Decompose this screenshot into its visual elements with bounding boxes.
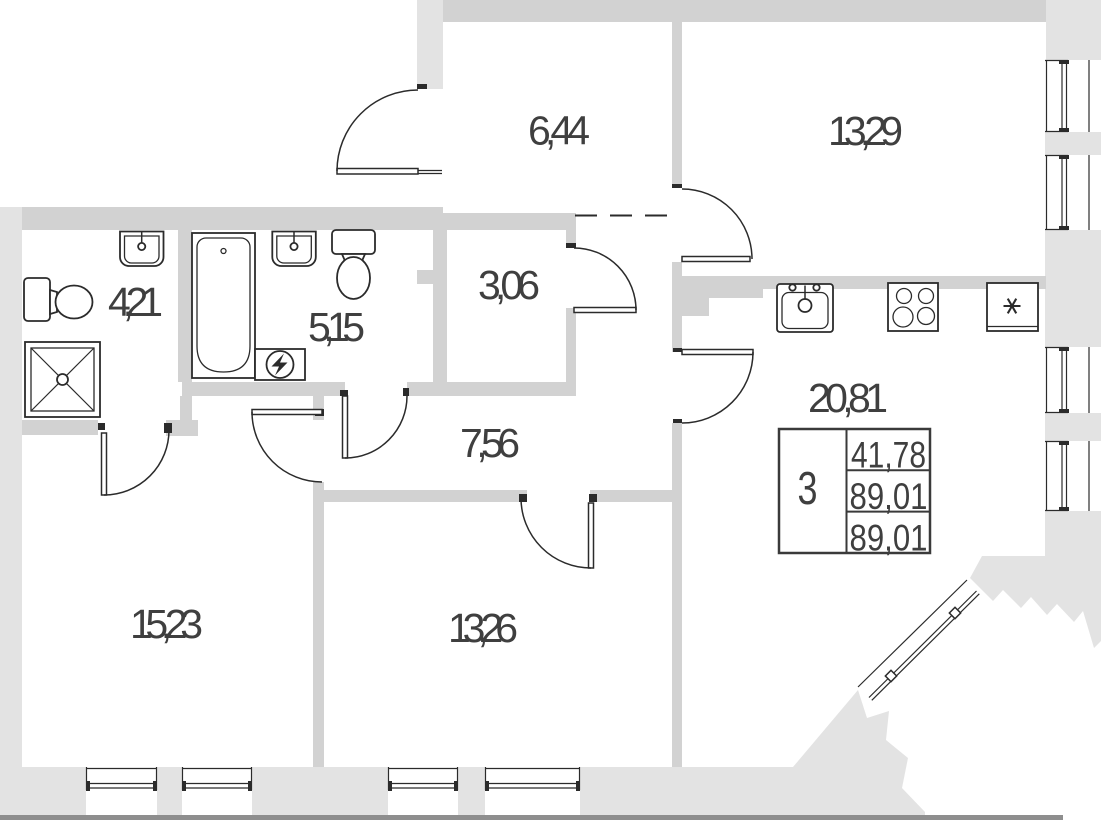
windows	[86, 60, 1089, 791]
door-icon	[682, 350, 753, 424]
table-value-2: 89,01	[850, 476, 928, 517]
room-label-bathroom-small: 4,21	[108, 279, 163, 325]
floor-plan: 6,44 13,29 4,21 5,15 3,06 7,56 20,81 15,…	[0, 0, 1101, 824]
window-icon	[1045, 347, 1089, 413]
room-label-bathroom-large: 5,15	[308, 304, 365, 350]
window-icon	[1045, 441, 1089, 511]
room-label-bedroom-top: 13,29	[828, 108, 903, 154]
door-icon	[574, 248, 636, 313]
kitchen-sink-icon	[777, 284, 833, 332]
room-label-wardrobe: 3,06	[478, 262, 540, 308]
outer-edge-line	[0, 815, 1063, 820]
table-value-1: 41,78	[851, 435, 926, 476]
window-icon	[86, 767, 157, 791]
room-label-bedroom-center: 13,26	[448, 605, 518, 651]
room-labels: 6,44 13,29 4,21 5,15 3,06 7,56 20,81 15,…	[108, 108, 903, 652]
door-icon	[521, 498, 594, 568]
room-label-hall: 6,44	[528, 108, 590, 154]
window-icon	[1045, 60, 1089, 132]
corner-window-icon	[858, 580, 979, 700]
door-icon	[682, 189, 752, 262]
table-value-3: 89,01	[850, 518, 928, 559]
table-rooms-count: 3	[798, 462, 818, 514]
wall-break-right	[970, 556, 1101, 648]
window-icon	[485, 767, 580, 791]
sink-icon	[120, 232, 164, 267]
door-icon	[343, 396, 408, 458]
wall-break-bottom	[580, 690, 925, 815]
window-icon	[388, 767, 458, 791]
toilet-icon	[332, 230, 375, 299]
fridge-icon	[987, 283, 1038, 331]
apartment-info-table: 3 41,78 89,01 89,01	[779, 429, 930, 559]
room-label-bedroom-left: 15,23	[130, 601, 203, 647]
room-label-kitchen-living: 20,81	[808, 375, 888, 421]
shower-icon	[25, 342, 100, 417]
water-heater-icon	[255, 349, 305, 380]
entrance-door-icon	[337, 90, 442, 174]
window-icon	[1045, 155, 1089, 230]
bathtub-icon	[192, 233, 255, 378]
door-icon	[252, 410, 322, 483]
stove-icon	[888, 283, 938, 331]
room-label-corridor: 7,56	[460, 420, 520, 466]
sink-icon	[272, 232, 316, 267]
toilet-icon	[24, 278, 93, 321]
window-icon	[182, 767, 252, 791]
door-icon	[102, 430, 170, 495]
